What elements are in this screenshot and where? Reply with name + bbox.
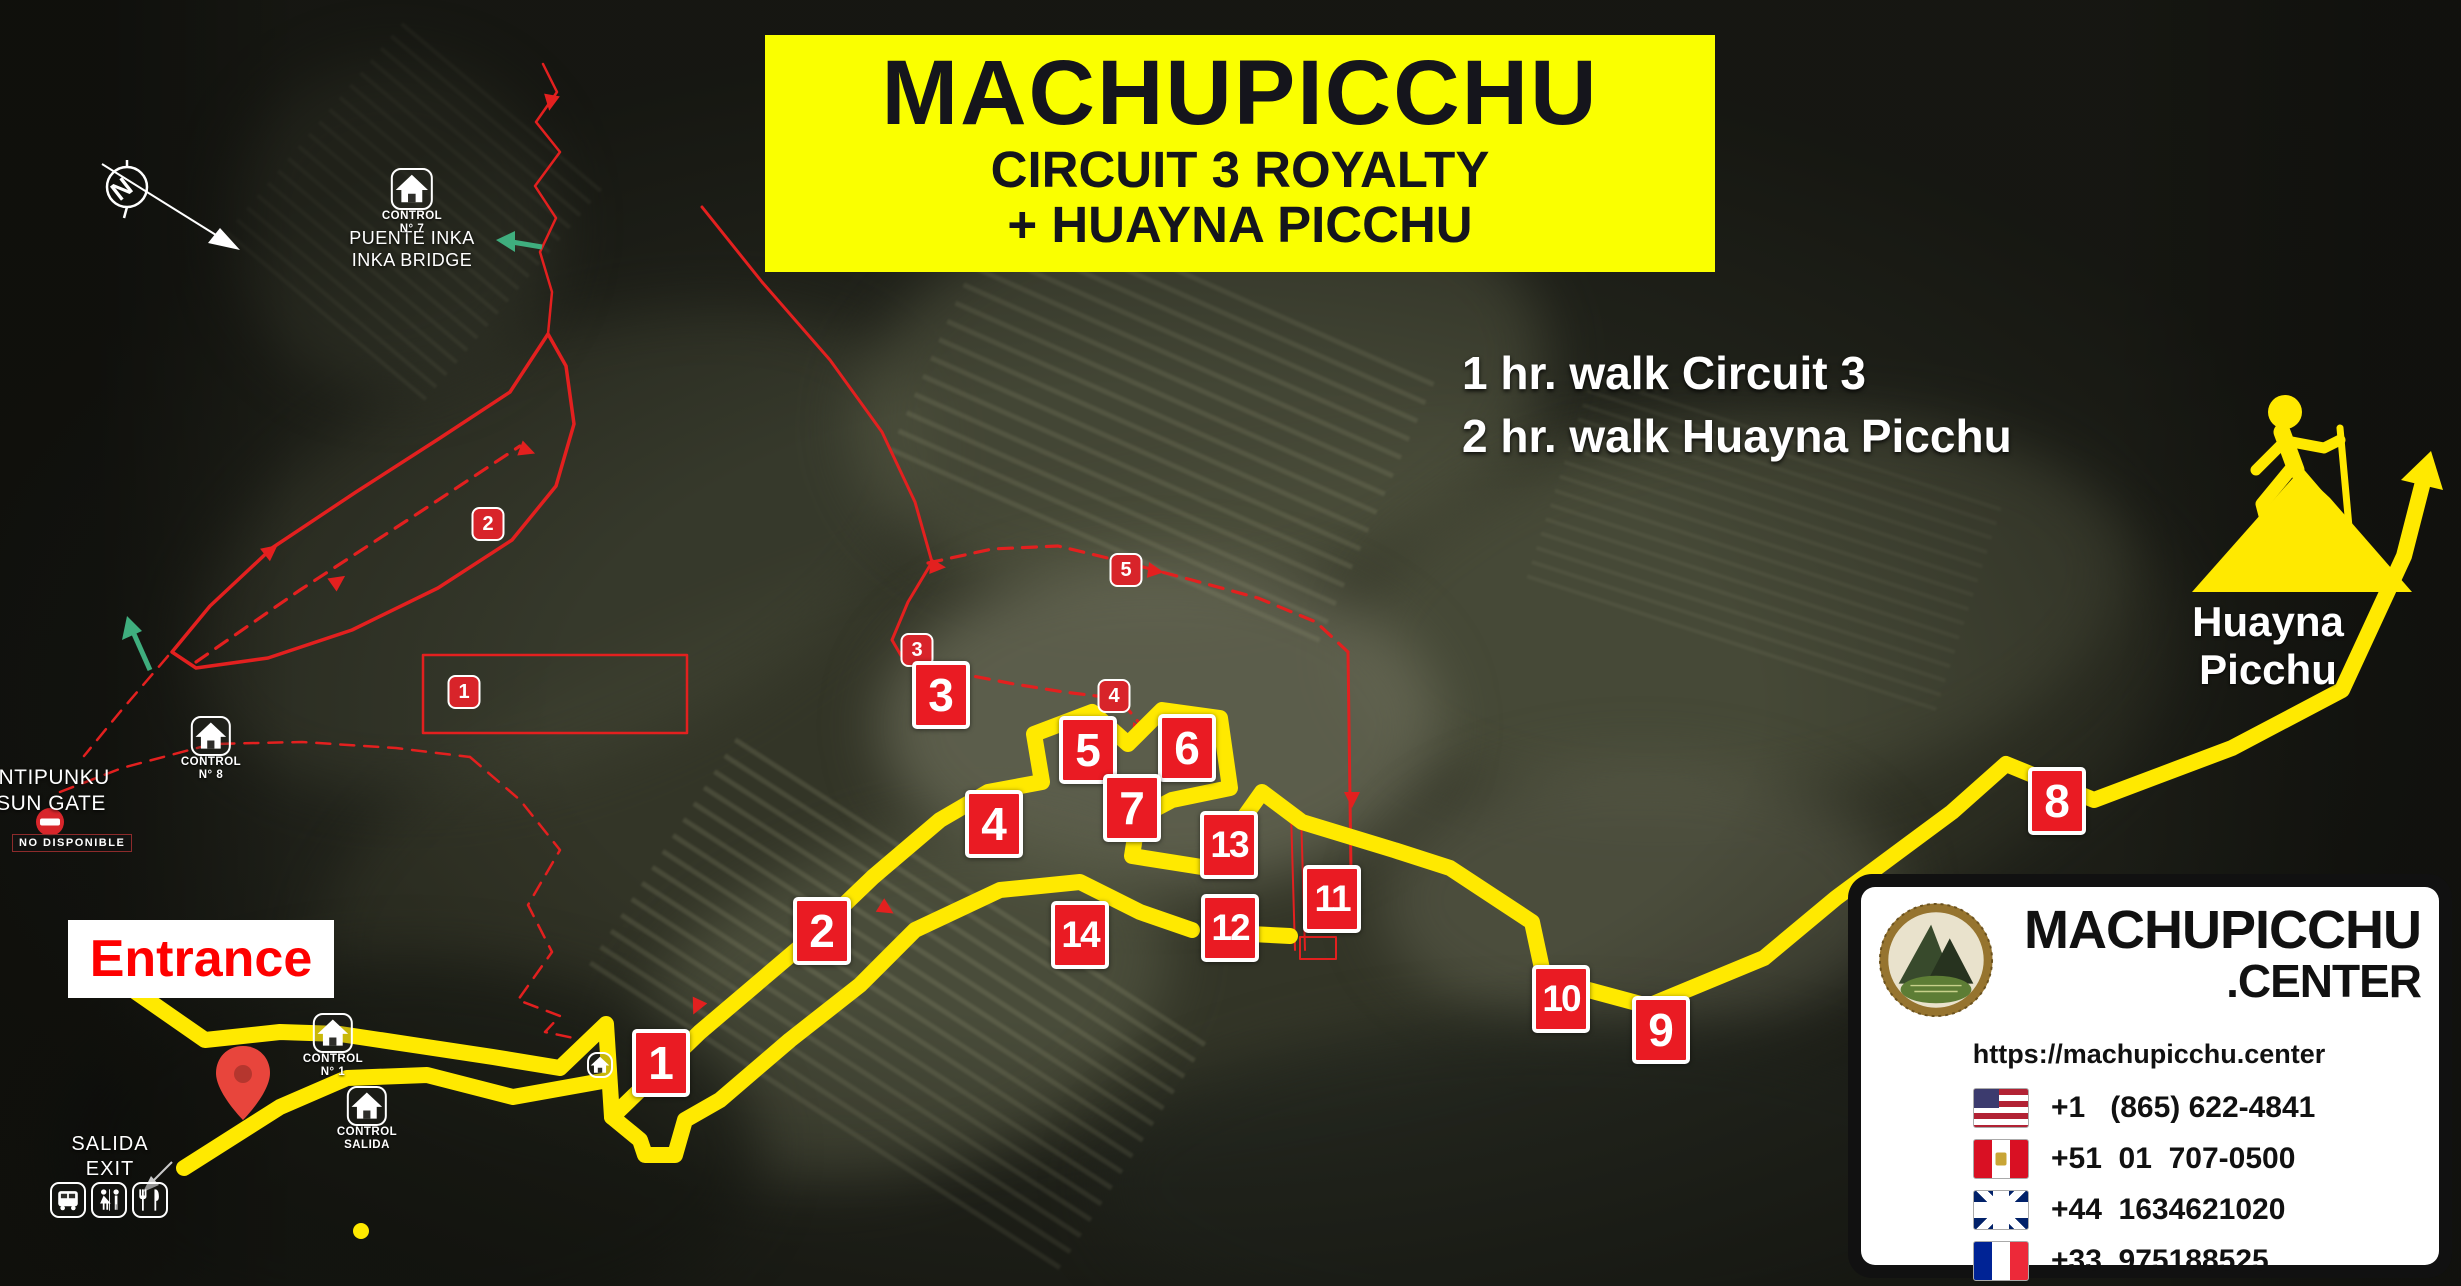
not-available-badge: NO DISPONIBLE [12, 834, 132, 852]
yellow-dot [353, 1223, 369, 1239]
entrance-label-box: Entrance [68, 920, 334, 998]
contact-card: MACHUPICCHU .CENTER https://machupicchu.… [1848, 874, 2452, 1278]
control-1: CONTROLN° 1 [303, 1013, 363, 1079]
compass-icon: N [102, 160, 240, 250]
route-badge-1: 1 [448, 675, 481, 709]
house-icon [191, 716, 231, 756]
waypoint-9: 9 [1632, 996, 1690, 1064]
restaurant-icon [132, 1182, 168, 1218]
title-line2: CIRCUIT 3 ROYALTY [765, 142, 1715, 197]
waypoint-4: 4 [965, 790, 1023, 858]
waypoint-12: 12 [1201, 894, 1259, 962]
control-house-small [587, 1052, 613, 1078]
phone-row-uk: +44 1634621020 [1973, 1184, 2421, 1235]
contact-url: https://machupicchu.center [1877, 1039, 2421, 1070]
title-line3: + HUAYNA PICCHU [765, 197, 1715, 252]
control-salida: CONTROLSALIDA [337, 1086, 397, 1152]
phone-row-fr: +33 975188525 [1973, 1235, 2421, 1286]
route-badge-2: 2 [472, 507, 505, 541]
restroom-icon [91, 1182, 127, 1218]
machupicchu-logo-icon [1877, 901, 1995, 1019]
house-icon [313, 1013, 353, 1053]
us-flag-icon [1973, 1088, 2029, 1128]
route-badge-5: 5 [1110, 553, 1143, 587]
fr-flag-icon [1973, 1241, 2029, 1281]
uk-flag-icon [1973, 1190, 2029, 1230]
salida-exit-label: SALIDA EXIT [71, 1132, 148, 1182]
phone-list: +1 (865) 622-4841+51 01 707-0500+44 1634… [1973, 1082, 2421, 1286]
facilities-icons [50, 1182, 168, 1218]
waypoint-8: 8 [2028, 767, 2086, 835]
central-descent-route [702, 207, 932, 664]
phone-number: +51 01 707-0500 [2051, 1142, 2295, 1176]
waypoint-1: 1 [632, 1029, 690, 1097]
exit-line: EXIT [71, 1157, 148, 1182]
phone-row-us: +1 (865) 622-4841 [1973, 1082, 2421, 1133]
waypoint-11: 11 [1303, 865, 1361, 933]
waypoint-3: 3 [912, 661, 970, 729]
inka-bridge-line2: INKA BRIDGE [349, 250, 475, 272]
bus-icon [50, 1182, 86, 1218]
control-8: CONTROLN° 8 [181, 716, 241, 782]
entrance-pin-icon [216, 1046, 270, 1120]
waypoint-10: 10 [1532, 965, 1590, 1033]
waypoint-7: 7 [1103, 774, 1161, 842]
phone-number: +44 1634621020 [2051, 1193, 2285, 1227]
huayna-picchu-label: Huayna Picchu [2172, 598, 2365, 694]
walk-info-line2: 2 hr. walk Huayna Picchu [1462, 405, 2012, 468]
house-icon [391, 168, 433, 210]
sun-gate-road [60, 742, 470, 792]
forest-trail [470, 757, 588, 1041]
sun-gate-line1: INTIPUNKU [0, 765, 110, 791]
route-badge-4: 4 [1098, 679, 1131, 713]
title-box: MACHUPICCHU CIRCUIT 3 ROYALTY + HUAYNA P… [765, 35, 1715, 272]
walk-info-line1: 1 hr. walk Circuit 3 [1462, 342, 2012, 405]
entrance-label: Entrance [90, 929, 313, 989]
huayna-picchu-arrowhead [2401, 451, 2443, 490]
house-icon [587, 1052, 613, 1078]
green-arrows [122, 231, 542, 670]
green-arrow-bridge [496, 231, 515, 252]
house-icon [347, 1086, 387, 1126]
waypoint-14: 14 [1051, 901, 1109, 969]
upper-loop-inner-trail [196, 446, 520, 662]
sun-gate-line2: SUN GATE [0, 791, 110, 817]
waypoint-2: 2 [793, 897, 851, 965]
hiker-icon [2192, 395, 2412, 592]
sun-gate-label: INTIPUNKU SUN GATE [0, 765, 110, 818]
green-arrow-west [122, 616, 142, 640]
upper-terraces-loop [172, 334, 574, 668]
pe-flag-icon [1973, 1139, 2029, 1179]
map-stage: N [0, 0, 2461, 1286]
control-7-bridge: CONTROLN° 7 [382, 168, 442, 236]
phone-row-pe: +51 01 707-0500 [1973, 1133, 2421, 1184]
phone-number: +1 (865) 622-4841 [2051, 1091, 2315, 1125]
brand-line1: MACHUPICCHU [1995, 903, 2421, 957]
loop-to-road-trail [84, 656, 168, 756]
walk-info: 1 hr. walk Circuit 3 2 hr. walk Huayna P… [1462, 342, 2012, 469]
salida-line: SALIDA [71, 1132, 148, 1157]
phone-number: +33 975188525 [2051, 1244, 2269, 1278]
waypoint-13: 13 [1200, 811, 1258, 879]
waypoint-6: 6 [1158, 714, 1216, 782]
brand-line2: .CENTER [1995, 957, 2421, 1005]
title-line1: MACHUPICCHU [765, 45, 1715, 142]
